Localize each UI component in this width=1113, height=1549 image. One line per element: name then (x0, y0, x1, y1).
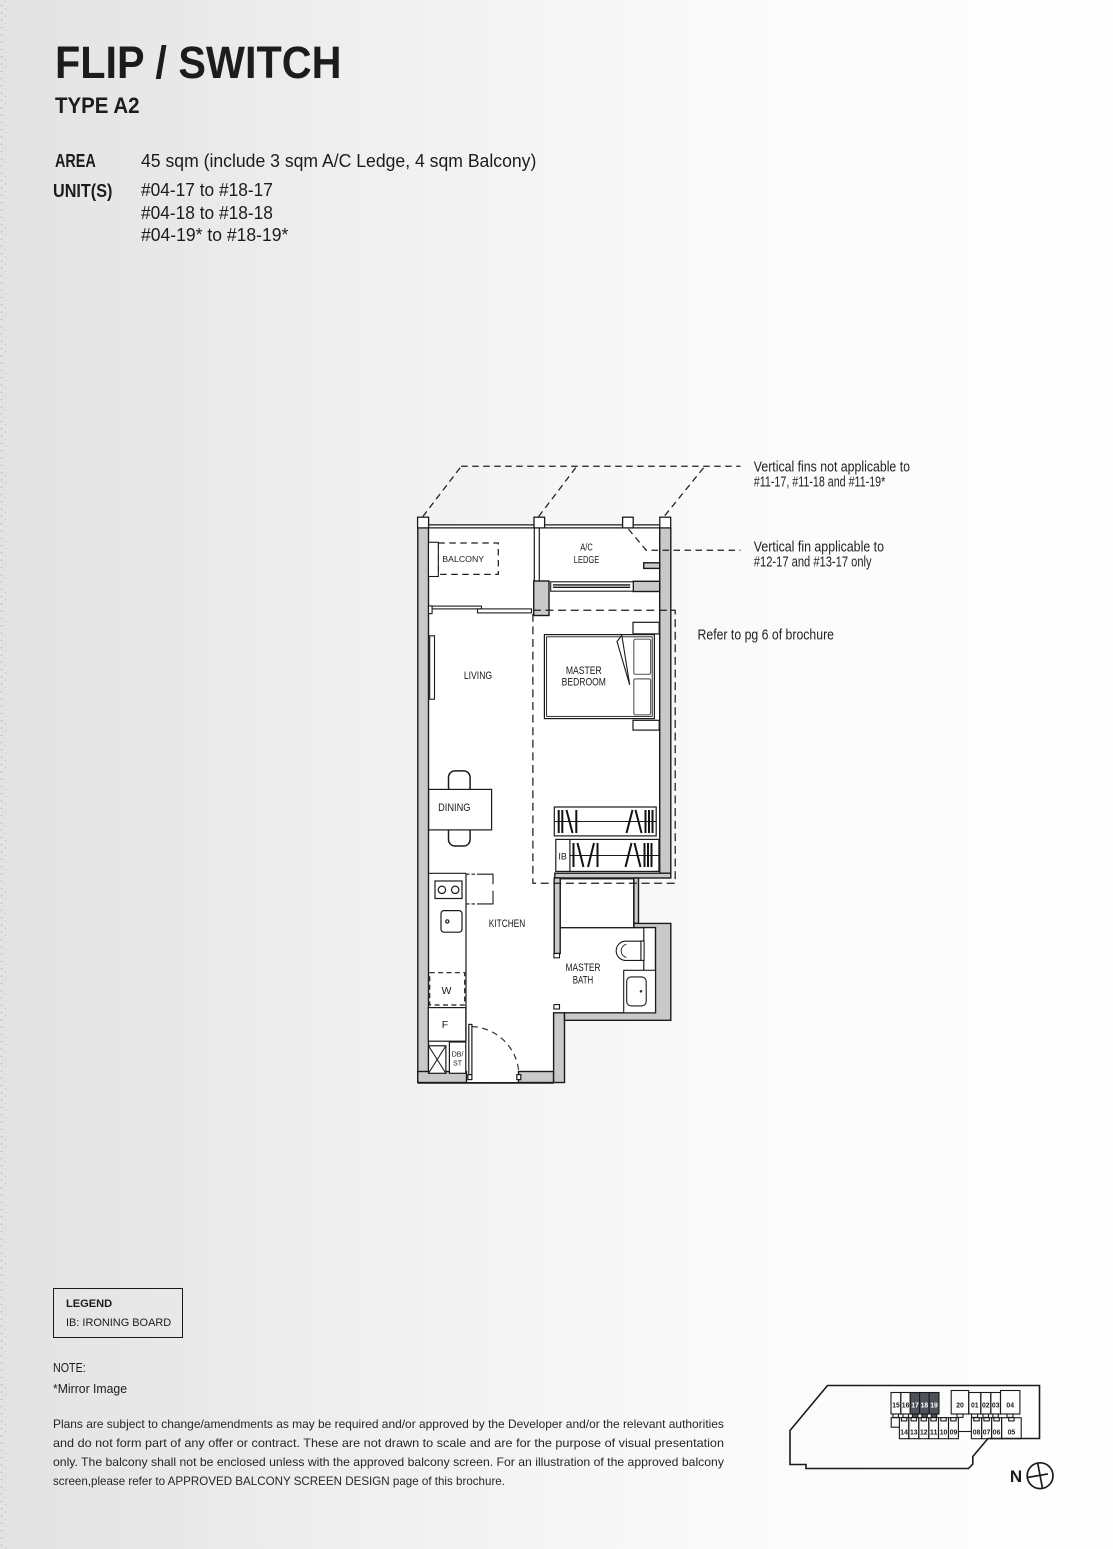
svg-text:#12-17 and #13-17 only: #12-17 and #13-17 only (754, 554, 872, 571)
svg-text:04: 04 (1006, 1401, 1014, 1410)
svg-text:18: 18 (921, 1401, 929, 1410)
svg-text:11: 11 (930, 1427, 938, 1436)
svg-text:07: 07 (983, 1427, 991, 1436)
svg-text:20: 20 (956, 1401, 964, 1410)
svg-text:12: 12 (920, 1427, 928, 1436)
svg-text:10: 10 (940, 1427, 948, 1436)
svg-text:N: N (1010, 1467, 1022, 1486)
svg-text:01: 01 (971, 1401, 979, 1410)
svg-text:09: 09 (950, 1427, 958, 1436)
svg-text:17: 17 (911, 1401, 919, 1410)
svg-text:F: F (442, 1019, 448, 1031)
svg-text:IB: IB (558, 852, 567, 862)
svg-text:KITCHEN: KITCHEN (489, 918, 525, 930)
svg-text:LIVING: LIVING (464, 670, 492, 682)
svg-text:14: 14 (900, 1427, 908, 1436)
svg-text:15: 15 (892, 1401, 900, 1410)
svg-text:BALCONY: BALCONY (442, 555, 484, 564)
svg-text:19: 19 (930, 1401, 938, 1410)
svg-text:16: 16 (902, 1401, 910, 1410)
svg-text:MASTERBEDROOM: MASTERBEDROOM (562, 665, 606, 689)
svg-text:W: W (442, 985, 452, 997)
svg-text:02: 02 (982, 1401, 990, 1410)
svg-text:13: 13 (910, 1427, 918, 1436)
svg-text:08: 08 (973, 1427, 981, 1436)
svg-text:DINING: DINING (438, 802, 470, 814)
svg-text:#11-17, #11-18 and #11-19*: #11-17, #11-18 and #11-19* (754, 474, 886, 491)
svg-text:05: 05 (1008, 1427, 1016, 1436)
svg-text:03: 03 (992, 1401, 1000, 1410)
svg-text:06: 06 (993, 1427, 1001, 1436)
svg-text:Refer to pg 6 of brochure: Refer to pg 6 of brochure (698, 626, 835, 643)
